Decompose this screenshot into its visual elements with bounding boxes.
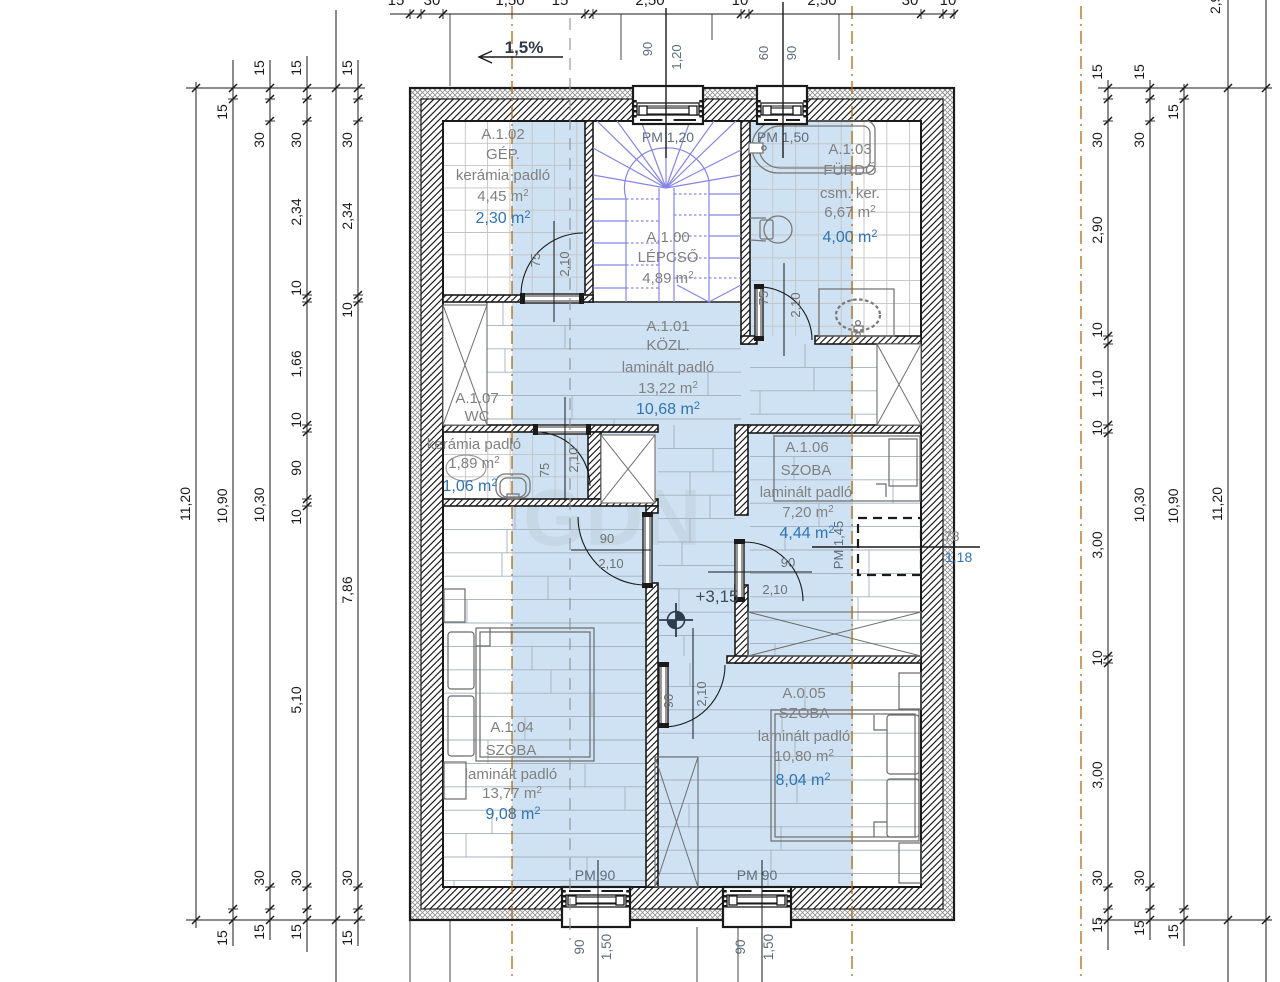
svg-text:15: 15 [1131, 64, 1147, 80]
svg-text:75: 75 [528, 253, 543, 267]
svg-text:laminált padló: laminált padló [465, 766, 558, 783]
svg-text:2,10: 2,10 [762, 582, 787, 597]
svg-text:10,30: 10,30 [1131, 487, 1147, 522]
svg-text:FÜRDŐ: FÜRDŐ [823, 161, 876, 179]
svg-text:75: 75 [537, 463, 552, 477]
svg-text:78: 78 [944, 528, 960, 544]
svg-text:5,10: 5,10 [288, 686, 304, 713]
svg-text:A.1.02: A.1.02 [481, 126, 524, 143]
svg-text:+3,15: +3,15 [695, 587, 738, 606]
svg-text:4,44 m2: 4,44 m2 [779, 524, 834, 542]
svg-text:15: 15 [1131, 920, 1147, 936]
svg-text:10,68 m2: 10,68 m2 [636, 400, 700, 418]
svg-text:90: 90 [784, 46, 799, 60]
svg-text:2,90: 2,90 [1089, 216, 1105, 243]
svg-text:30: 30 [902, 0, 919, 9]
svg-text:10: 10 [1089, 322, 1105, 338]
svg-text:10,90: 10,90 [214, 488, 230, 523]
svg-text:2,10: 2,10 [566, 447, 581, 472]
svg-text:10,80 m2: 10,80 m2 [774, 748, 834, 765]
svg-text:PM 1,20: PM 1,20 [642, 129, 694, 145]
svg-text:A.1.06: A.1.06 [785, 439, 828, 456]
svg-text:6,67 m2: 6,67 m2 [824, 204, 876, 221]
svg-text:15: 15 [552, 0, 569, 9]
svg-text:1,5%: 1,5% [505, 38, 544, 57]
svg-text:PM 90: PM 90 [575, 867, 616, 883]
svg-text:1,18: 1,18 [945, 549, 972, 565]
svg-text:90: 90 [661, 694, 676, 708]
svg-text:15: 15 [251, 60, 267, 76]
svg-text:7,86: 7,86 [339, 576, 355, 603]
svg-text:15: 15 [288, 60, 304, 76]
svg-text:9,08 m2: 9,08 m2 [485, 805, 540, 823]
svg-text:A.0.05: A.0.05 [782, 685, 825, 702]
svg-text:10: 10 [288, 412, 304, 428]
svg-text:30: 30 [424, 0, 441, 9]
svg-text:30: 30 [288, 870, 304, 886]
svg-text:1,20: 1,20 [669, 44, 684, 69]
svg-text:30: 30 [288, 132, 304, 148]
svg-text:30: 30 [1089, 132, 1105, 148]
svg-text:15: 15 [1089, 64, 1105, 80]
svg-text:10: 10 [339, 302, 355, 318]
svg-text:10: 10 [940, 0, 957, 9]
svg-text:GÉP.: GÉP. [486, 146, 520, 163]
svg-text:2,10: 2,10 [788, 292, 803, 317]
svg-text:WC: WC [465, 408, 490, 425]
svg-text:3,00: 3,00 [1089, 531, 1105, 558]
svg-text:4,00 m2: 4,00 m2 [822, 228, 877, 246]
svg-text:1,50: 1,50 [761, 934, 776, 960]
svg-text:10: 10 [288, 509, 304, 525]
svg-text:2,34: 2,34 [339, 202, 355, 229]
svg-text:SZOBA: SZOBA [486, 742, 537, 759]
svg-text:4,45 m2: 4,45 m2 [477, 188, 529, 205]
svg-text:15: 15 [339, 60, 355, 76]
svg-text:15: 15 [1089, 917, 1105, 933]
svg-text:SZOBA: SZOBA [781, 462, 832, 479]
svg-text:15: 15 [288, 924, 304, 940]
svg-text:A.1.01: A.1.01 [646, 318, 689, 335]
svg-text:15: 15 [251, 924, 267, 940]
svg-text:30: 30 [251, 132, 267, 148]
svg-text:10: 10 [732, 0, 749, 9]
svg-text:2,50: 2,50 [807, 0, 836, 9]
svg-text:kerámia padló: kerámia padló [427, 436, 521, 453]
svg-text:90: 90 [781, 555, 795, 570]
svg-text:90: 90 [640, 42, 655, 56]
svg-text:1,66: 1,66 [288, 350, 304, 377]
svg-text:15: 15 [214, 104, 230, 120]
svg-text:15: 15 [339, 930, 355, 946]
svg-text:kerámia padló: kerámia padló [456, 167, 550, 184]
svg-text:A.1.00: A.1.00 [646, 229, 689, 246]
svg-text:90: 90 [733, 939, 748, 954]
svg-text:4,89 m2: 4,89 m2 [642, 270, 694, 287]
svg-text:75: 75 [756, 291, 771, 305]
svg-text:90: 90 [600, 531, 614, 546]
svg-text:2,34: 2,34 [288, 198, 304, 225]
svg-text:2,10: 2,10 [694, 681, 709, 706]
svg-text:KÖZL.: KÖZL. [646, 336, 689, 354]
svg-text:A.1.07: A.1.07 [455, 390, 498, 407]
svg-text:csm. ker.: csm. ker. [820, 185, 880, 202]
svg-text:laminált padló: laminált padló [758, 728, 851, 745]
svg-text:2,90: 2,90 [1207, 0, 1223, 14]
svg-text:10: 10 [288, 280, 304, 296]
svg-text:laminált padló: laminált padló [760, 484, 853, 501]
svg-text:2,50: 2,50 [635, 0, 664, 9]
svg-text:A.1.03: A.1.03 [828, 141, 871, 158]
svg-text:15: 15 [1165, 924, 1181, 940]
svg-text:3,00: 3,00 [1089, 761, 1105, 788]
svg-text:8,04 m2: 8,04 m2 [775, 771, 830, 789]
svg-text:11,20: 11,20 [1209, 487, 1225, 521]
svg-text:2,30 m2: 2,30 m2 [475, 209, 530, 227]
svg-text:1,06 m2: 1,06 m2 [442, 477, 497, 495]
svg-text:10,30: 10,30 [251, 487, 267, 522]
svg-text:30: 30 [1131, 132, 1147, 148]
svg-text:30: 30 [339, 870, 355, 886]
svg-text:10: 10 [1089, 650, 1105, 666]
svg-text:90: 90 [572, 939, 587, 954]
svg-text:7,20 m2: 7,20 m2 [782, 504, 834, 521]
svg-text:11,20: 11,20 [177, 487, 193, 521]
svg-text:10: 10 [1089, 420, 1105, 436]
svg-text:60: 60 [756, 46, 771, 60]
svg-text:1,50: 1,50 [495, 0, 524, 9]
svg-text:10,90: 10,90 [1165, 488, 1181, 523]
svg-text:15: 15 [214, 930, 230, 946]
svg-text:30: 30 [251, 870, 267, 886]
svg-text:PM 90: PM 90 [737, 867, 778, 883]
svg-text:SZOBA: SZOBA [779, 705, 830, 722]
svg-text:15: 15 [1165, 104, 1181, 120]
svg-text:15: 15 [388, 0, 405, 9]
svg-text:30: 30 [1089, 870, 1105, 886]
svg-text:30: 30 [339, 132, 355, 148]
svg-text:laminált padló: laminált padló [622, 359, 715, 376]
svg-text:90: 90 [288, 460, 304, 476]
svg-text:1,10: 1,10 [1089, 370, 1105, 397]
svg-text:13,22 m2: 13,22 m2 [638, 380, 698, 397]
svg-text:1,89 m2: 1,89 m2 [448, 455, 500, 472]
svg-text:LÉPCSŐ: LÉPCSŐ [638, 249, 699, 266]
svg-text:2,10: 2,10 [598, 556, 623, 571]
svg-text:1,50: 1,50 [599, 934, 614, 960]
svg-text:30: 30 [1131, 870, 1147, 886]
